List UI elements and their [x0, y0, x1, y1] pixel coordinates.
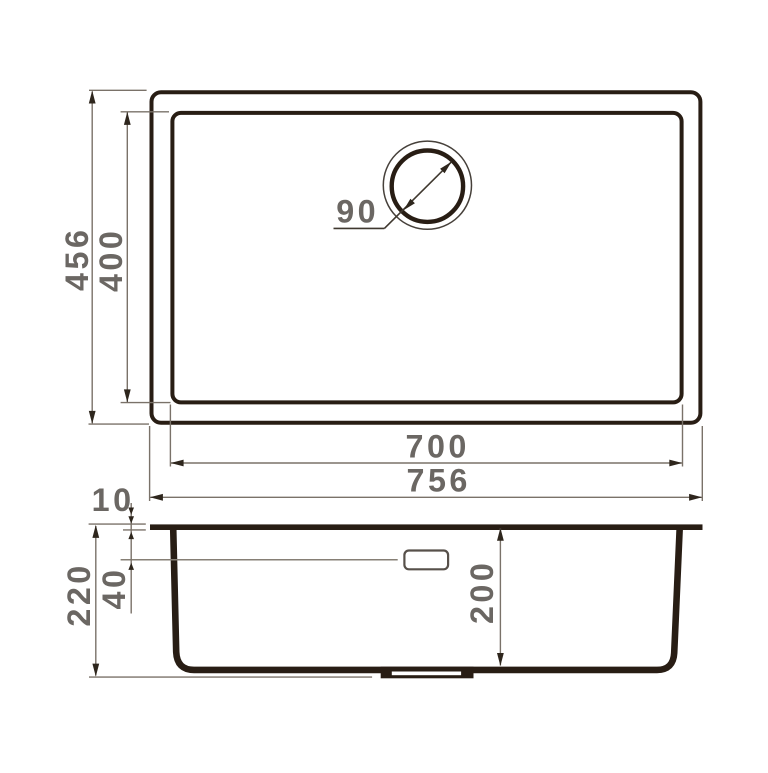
svg-text:456: 456	[59, 227, 95, 291]
svg-text:700: 700	[406, 429, 470, 465]
svg-text:10: 10	[92, 482, 135, 518]
svg-text:90: 90	[336, 194, 379, 230]
svg-text:200: 200	[464, 560, 500, 624]
svg-text:220: 220	[61, 562, 97, 626]
svg-text:756: 756	[407, 462, 471, 498]
svg-text:40: 40	[96, 567, 132, 610]
svg-text:400: 400	[93, 228, 129, 292]
